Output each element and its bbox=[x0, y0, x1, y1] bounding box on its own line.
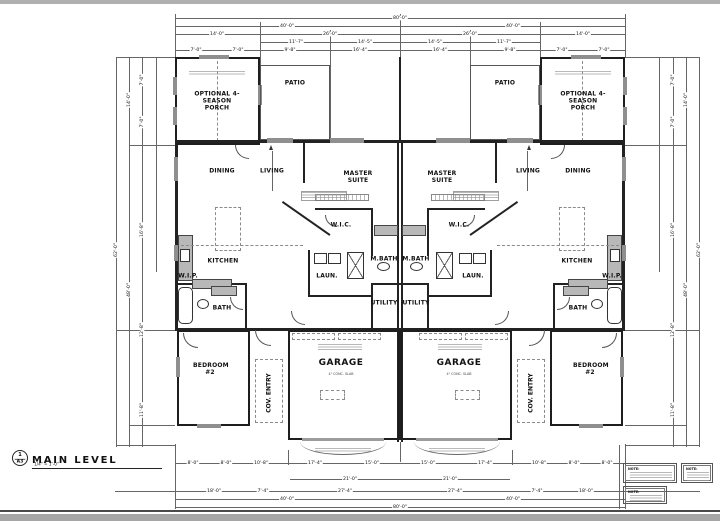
note-box: NOTE: bbox=[681, 463, 713, 483]
dim-label: 10'-8" bbox=[253, 461, 269, 466]
witness-line bbox=[625, 57, 699, 58]
attic-access bbox=[320, 390, 345, 400]
room-label-wic: W.I.C. bbox=[449, 223, 470, 230]
dim-line bbox=[686, 57, 687, 447]
kitchen-sink bbox=[180, 249, 190, 262]
dim-label: 15'-0" bbox=[364, 461, 380, 466]
dim-label: 12'-8" bbox=[671, 322, 676, 338]
dim-label: 7'-0" bbox=[556, 48, 569, 53]
room-label-laundry: LAUN. bbox=[316, 274, 337, 281]
dim-label: 17'-4" bbox=[477, 461, 493, 466]
window bbox=[623, 107, 627, 125]
dim-label: 7'-4" bbox=[257, 489, 270, 494]
window bbox=[330, 138, 364, 143]
dryer bbox=[328, 253, 341, 264]
room-label-master-bath: M.BATH bbox=[402, 257, 429, 264]
dim-label: 11'-8" bbox=[671, 402, 676, 418]
witness-line bbox=[625, 425, 686, 426]
dim-label: 12'-8" bbox=[140, 322, 145, 338]
witness-line bbox=[175, 14, 176, 57]
dim-label: 17'-4" bbox=[307, 461, 323, 466]
dim-label: 7'-0" bbox=[671, 74, 676, 87]
witness-line bbox=[116, 330, 175, 331]
witness-line bbox=[116, 445, 175, 446]
dim-label: 9'-8" bbox=[504, 48, 517, 53]
garage-door-header bbox=[465, 333, 508, 340]
plant-shelf-note bbox=[453, 191, 499, 201]
garage-door-header bbox=[419, 333, 462, 340]
divider-line bbox=[619, 445, 620, 509]
detail-number: 1 bbox=[14, 452, 26, 458]
dim-label: 14'-0" bbox=[575, 32, 591, 37]
window bbox=[199, 55, 229, 59]
witness-line bbox=[400, 14, 401, 57]
bathtub bbox=[607, 287, 622, 324]
direction-arrow-head bbox=[527, 145, 531, 150]
wall bbox=[495, 143, 497, 183]
dim-label: 27'-4" bbox=[337, 489, 353, 494]
sheet-reference: A3 bbox=[15, 459, 26, 464]
room-label-wip: W.I.P. bbox=[178, 274, 198, 281]
dim-label: 7'-0" bbox=[190, 48, 203, 53]
room-label-bath: BATH bbox=[569, 306, 588, 313]
witness-line bbox=[116, 57, 175, 58]
room-label-living: LIVING bbox=[260, 169, 284, 176]
dim-label: 62'-0" bbox=[114, 242, 119, 258]
room-label-master-suite: MASTER SUITE bbox=[425, 171, 459, 185]
dryer bbox=[459, 253, 472, 264]
window bbox=[197, 424, 221, 428]
dim-label: 8'-0" bbox=[568, 461, 581, 466]
dim-label: 40'-0" bbox=[279, 497, 295, 502]
wall bbox=[308, 250, 310, 297]
room-label-garage: GARAGE bbox=[437, 358, 482, 368]
dim-label: 14'-0" bbox=[127, 92, 132, 108]
toilet bbox=[591, 299, 603, 309]
note-heading: NOTE: bbox=[686, 467, 697, 471]
garage-slab-note: 4" CONC. SLAB bbox=[329, 372, 354, 376]
dim-label: 21'-0" bbox=[442, 477, 458, 482]
door-swing bbox=[291, 311, 305, 325]
annotation-smudge bbox=[315, 448, 371, 452]
annotation-smudge bbox=[429, 448, 485, 452]
view-scale: 1/4" = 1'-0" bbox=[34, 462, 59, 467]
witness-line bbox=[625, 145, 686, 146]
dim-label: 15'-0" bbox=[420, 461, 436, 466]
witness-line bbox=[625, 330, 699, 331]
dim-line bbox=[156, 57, 157, 272]
kitchen-sink bbox=[610, 249, 620, 262]
dim-label: 80'-0" bbox=[392, 16, 408, 21]
room-label-living: LIVING bbox=[516, 169, 540, 176]
wall bbox=[427, 208, 429, 256]
direction-arrow-head bbox=[269, 145, 273, 150]
room-label-master-suite: MASTER SUITE bbox=[341, 171, 375, 185]
room-label-kitchen: KITCHEN bbox=[208, 259, 239, 266]
dim-label: 9'-8" bbox=[284, 48, 297, 53]
patio-door bbox=[507, 138, 533, 143]
dim-label: 8'-0" bbox=[601, 461, 614, 466]
room-label-cov-entry: COV. ENTRY bbox=[528, 373, 535, 412]
dim-label: 18'-0" bbox=[206, 489, 222, 494]
dim-label: 7'-0" bbox=[598, 48, 611, 53]
annotation-smudge bbox=[438, 344, 482, 352]
room-label-patio: PATIO bbox=[285, 81, 305, 88]
door-swing bbox=[495, 311, 509, 325]
garage-door-header bbox=[338, 333, 381, 340]
window bbox=[579, 424, 603, 428]
dim-label: 14'-0" bbox=[209, 32, 225, 37]
door-swing bbox=[551, 145, 565, 159]
note-box: NOTE: bbox=[623, 486, 667, 504]
room-label-dining: DINING bbox=[209, 169, 235, 176]
dim-label: 16'-8" bbox=[671, 222, 676, 238]
witness-line bbox=[625, 445, 699, 446]
dim-label: 48'-0" bbox=[127, 282, 132, 298]
window bbox=[620, 357, 624, 377]
room-label-kitchen: KITCHEN bbox=[562, 259, 593, 266]
dim-line bbox=[175, 463, 625, 464]
attic-access bbox=[455, 390, 480, 400]
washer bbox=[473, 253, 486, 264]
room-label-bedroom2: BEDROOM #2 bbox=[573, 363, 607, 377]
wall bbox=[429, 208, 485, 210]
plant-shelf-note bbox=[301, 191, 347, 201]
dim-label: 8'-0" bbox=[220, 461, 233, 466]
dim-line bbox=[115, 491, 700, 492]
garage-door-sill bbox=[302, 438, 384, 441]
note-heading: NOTE: bbox=[628, 467, 639, 471]
room-label-utility: UTILITY bbox=[402, 301, 429, 308]
dim-label: 26'-0" bbox=[462, 32, 478, 37]
patio-outline bbox=[260, 65, 330, 140]
room-label-laundry: LAUN. bbox=[462, 274, 483, 281]
wall-diagonal bbox=[469, 201, 518, 236]
master-bath-vanity bbox=[374, 225, 398, 236]
ceiling-break-line bbox=[497, 245, 619, 246]
door-swing bbox=[255, 330, 271, 346]
dim-label: 11'-7" bbox=[288, 40, 304, 45]
master-bath-vanity bbox=[402, 225, 426, 236]
room-label-wip: W.I.P. bbox=[602, 274, 622, 281]
dim-label: 11'-7" bbox=[496, 40, 512, 45]
unit-right: OPTIONAL 4-SEASON PORCH PATIO bbox=[400, 57, 625, 457]
garage-slab-note: 4" CONC. SLAB bbox=[447, 372, 472, 376]
window bbox=[622, 157, 626, 181]
dim-label: 26'-0" bbox=[322, 32, 338, 37]
room-label-bedroom2: BEDROOM #2 bbox=[193, 363, 227, 377]
door-swing bbox=[529, 330, 545, 346]
detail-tag: 1 A3 bbox=[12, 450, 28, 466]
dim-label: 7'-0" bbox=[232, 48, 245, 53]
dim-label: 62'-0" bbox=[697, 242, 702, 258]
note-text-smudge bbox=[630, 495, 662, 502]
note-box: NOTE: bbox=[623, 463, 677, 483]
wall bbox=[303, 143, 305, 183]
wall bbox=[308, 295, 372, 297]
shower bbox=[347, 252, 364, 279]
window bbox=[173, 107, 177, 125]
wall bbox=[371, 208, 373, 256]
ceiling-break-line bbox=[181, 245, 303, 246]
dim-label: 18'-0" bbox=[578, 489, 594, 494]
bath-vanity bbox=[211, 286, 237, 296]
patio-outline bbox=[470, 65, 540, 140]
washer bbox=[314, 253, 327, 264]
garage-door-sill bbox=[416, 438, 498, 441]
annotation-smudge bbox=[189, 71, 245, 76]
witness-line bbox=[625, 14, 626, 57]
dim-label: 80'-0" bbox=[392, 505, 408, 510]
dim-label: 21'-0" bbox=[342, 477, 358, 482]
toilet bbox=[197, 299, 209, 309]
witness-line bbox=[129, 145, 175, 146]
bedroom-wing-walls bbox=[550, 330, 623, 426]
window bbox=[622, 245, 626, 261]
bottom-edge-strip bbox=[0, 514, 720, 521]
dim-label: 48'-0" bbox=[684, 282, 689, 298]
room-label-cov-entry: COV. ENTRY bbox=[266, 373, 273, 412]
bathtub bbox=[178, 287, 193, 324]
note-text-smudge bbox=[630, 472, 672, 481]
dim-label: 16'-4" bbox=[352, 48, 368, 53]
room-label-utility: UTILITY bbox=[370, 301, 397, 308]
wall-diagonal bbox=[282, 201, 331, 236]
dim-label: 40'-0" bbox=[505, 497, 521, 502]
dim-line bbox=[290, 479, 510, 480]
dim-line bbox=[129, 57, 130, 447]
room-label-master-bath: M.BATH bbox=[370, 257, 397, 264]
annotation-smudge bbox=[318, 344, 362, 352]
witness-line bbox=[129, 425, 175, 426]
room-label-wic: W.I.C. bbox=[331, 223, 352, 230]
note-text-smudge bbox=[687, 472, 709, 481]
window bbox=[174, 157, 178, 181]
dim-line bbox=[175, 499, 625, 500]
door-swing bbox=[230, 297, 243, 310]
patio-door bbox=[267, 138, 293, 143]
dim-label: 40'-0" bbox=[279, 24, 295, 29]
window bbox=[436, 138, 470, 143]
wall bbox=[315, 208, 371, 210]
room-label-porch: OPTIONAL 4-SEASON PORCH bbox=[193, 92, 241, 113]
room-label-garage: GARAGE bbox=[319, 358, 364, 368]
wall bbox=[245, 283, 247, 330]
dim-label: 8'-0" bbox=[187, 461, 200, 466]
shower bbox=[436, 252, 453, 279]
top-edge-strip bbox=[0, 0, 720, 4]
dim-label: 27'-4" bbox=[447, 489, 463, 494]
wall bbox=[428, 295, 492, 297]
door-swing bbox=[235, 145, 249, 159]
dim-label: 7'-4" bbox=[531, 489, 544, 494]
window bbox=[176, 357, 180, 377]
annotation-smudge bbox=[555, 71, 611, 76]
dim-label: 16'-8" bbox=[140, 222, 145, 238]
dim-label: 40'-0" bbox=[505, 24, 521, 29]
window bbox=[173, 77, 177, 95]
window bbox=[571, 55, 601, 59]
room-label-porch: OPTIONAL 4-SEASON PORCH bbox=[559, 92, 607, 113]
wall bbox=[553, 283, 555, 330]
wall bbox=[371, 283, 400, 285]
floor-plan-sheet: 80'-0" 40'-0" 40'-0" 14'-0" 26'-0" 26'-0… bbox=[0, 0, 720, 521]
bath-vanity bbox=[563, 286, 589, 296]
room-label-bath: BATH bbox=[213, 306, 232, 313]
dim-label: 16'-4" bbox=[432, 48, 448, 53]
dim-label: 10'-8" bbox=[531, 461, 547, 466]
garage-door-header bbox=[292, 333, 335, 340]
dim-label: 7'-0" bbox=[671, 116, 676, 129]
window bbox=[623, 77, 627, 95]
dim-label: 14'-5" bbox=[357, 40, 373, 45]
unit-left: OPTIONAL 4-SEASON PORCH PATIO bbox=[175, 57, 400, 457]
room-label-patio: PATIO bbox=[495, 81, 515, 88]
dim-label: 7'-0" bbox=[140, 74, 145, 87]
wall bbox=[490, 250, 492, 297]
dim-label: 14'-0" bbox=[684, 92, 689, 108]
room-label-dining: DINING bbox=[565, 169, 591, 176]
note-heading: NOTE: bbox=[628, 490, 639, 494]
dim-label: 11'-8" bbox=[140, 402, 145, 418]
sheet-bottom-border bbox=[0, 510, 720, 512]
wall bbox=[400, 283, 429, 285]
dim-label: 14'-5" bbox=[427, 40, 443, 45]
dim-line bbox=[659, 57, 660, 272]
dim-label: 7'-0" bbox=[140, 116, 145, 129]
